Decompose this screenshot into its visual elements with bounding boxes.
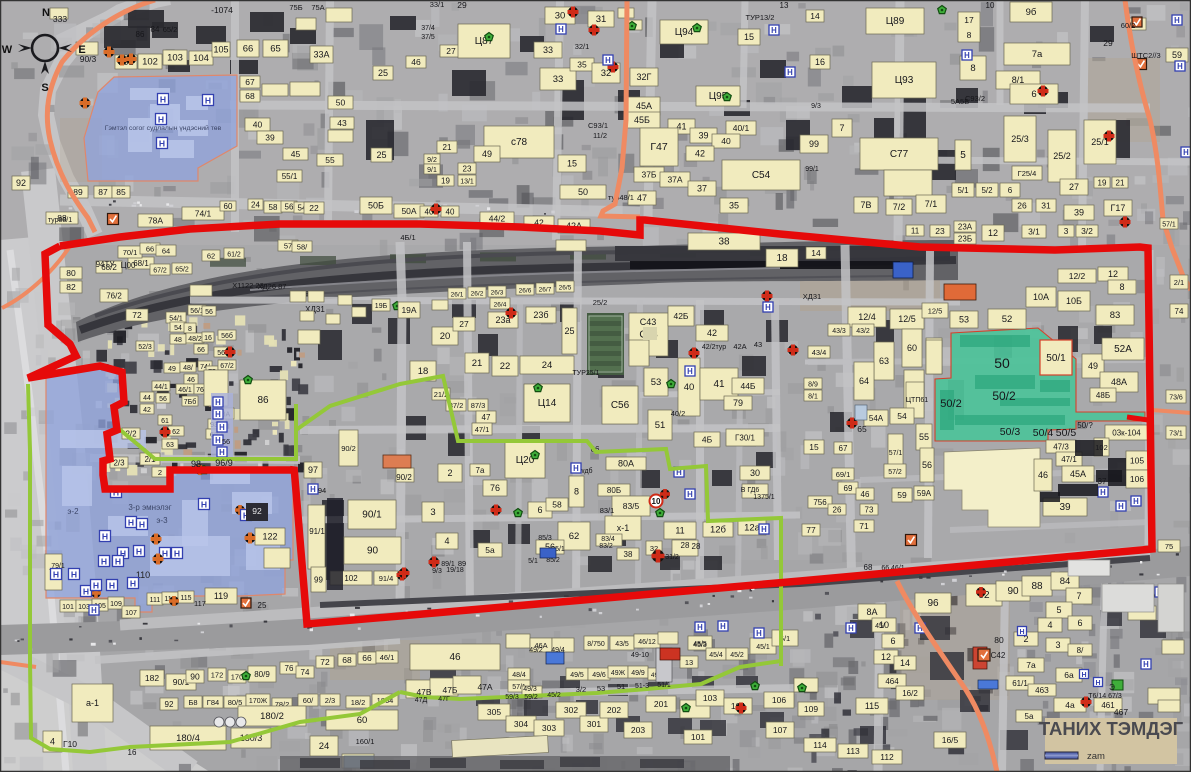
svg-text:333: 333 [53,14,67,24]
svg-text:H: H [687,490,693,499]
svg-text:5/1: 5/1 [957,186,969,195]
svg-text:87: 87 [98,187,108,197]
svg-text:H: H [1118,502,1124,511]
svg-text:67: 67 [245,77,255,87]
svg-text:12: 12 [988,228,998,238]
svg-text:64: 64 [162,247,170,256]
svg-text:4: 4 [444,536,449,546]
svg-text:13: 13 [780,1,789,10]
svg-text:25: 25 [376,150,386,160]
svg-text:464: 464 [885,677,899,686]
svg-text:37/5: 37/5 [421,34,435,41]
svg-text:56: 56 [222,437,230,446]
svg-text:H: H [310,485,316,494]
svg-text:12/4: 12/4 [858,312,876,322]
svg-text:55/1: 55/1 [282,172,298,181]
svg-text:10A: 10A [1033,292,1049,302]
svg-text:45Б: 45Б [634,115,650,125]
svg-text:H: H [174,549,180,559]
svg-text:12/2: 12/2 [1069,271,1086,281]
svg-text:4Б/1: 4Б/1 [400,233,415,242]
svg-text:H: H [215,398,221,407]
svg-text:58: 58 [552,500,562,510]
svg-text:46: 46 [187,377,195,384]
svg-text:ХД31: ХД31 [803,292,821,301]
svg-text:104: 104 [193,53,209,64]
svg-text:54: 54 [174,325,182,332]
svg-text:52/3: 52/3 [138,344,152,351]
svg-text:45/: 45/ [875,623,885,630]
svg-text:x-1: x-1 [617,523,630,533]
svg-text:24: 24 [251,201,260,210]
svg-text:H: H [964,51,970,60]
svg-text:32/1: 32/1 [575,42,590,51]
svg-text:Г17: Г17 [1111,203,1126,213]
svg-text:H: H [219,423,225,432]
svg-text:16/5: 16/5 [942,735,959,745]
svg-text:105: 105 [1130,456,1144,466]
svg-text:5a: 5a [1025,712,1034,721]
svg-text:62: 62 [207,252,215,261]
svg-text:С42: С42 [991,651,1006,660]
svg-text:51/1: 51/1 [657,682,671,689]
svg-text:65/2: 65/2 [163,25,178,34]
svg-text:60/2: 60/2 [1121,21,1136,30]
svg-text:85/3: 85/3 [538,535,552,542]
svg-text:40: 40 [253,120,263,130]
svg-text:3/2: 3/2 [1081,226,1093,236]
svg-text:H: H [1143,660,1149,669]
svg-text:2: 2 [447,468,452,478]
svg-text:53: 53 [959,315,969,325]
svg-text:92: 92 [16,178,26,188]
svg-text:42/2тур: 42/2тур [702,344,726,351]
svg-text:99/1: 99/1 [805,166,819,173]
svg-text:H: H [215,436,221,445]
svg-text:60: 60 [907,343,917,353]
svg-text:63: 63 [879,356,889,366]
svg-text:31/2: 31/2 [665,554,679,561]
svg-text:H: H [128,518,134,528]
svg-text:96/9: 96/9 [215,458,233,468]
svg-text:69/1: 69/1 [836,470,851,479]
svg-text:20: 20 [440,331,451,342]
svg-text:114: 114 [813,740,827,750]
svg-text:5: 5 [960,150,966,161]
svg-text:27: 27 [1069,182,1079,192]
svg-text:46З: 46З [1035,686,1049,695]
svg-text:4a: 4a [1065,700,1075,710]
svg-text:94: 94 [318,486,326,495]
svg-text:10Б: 10Б [1066,296,1082,306]
svg-text:45/2: 45/2 [730,652,744,659]
svg-text:67/2: 67/2 [153,268,167,275]
svg-text:22: 22 [309,203,319,213]
svg-text:H: H [573,464,579,473]
svg-text:12/5: 12/5 [928,307,943,316]
svg-text:29: 29 [1103,38,1113,48]
svg-text:ТУР13/2: ТУР13/2 [746,13,775,22]
svg-text:115: 115 [180,595,191,602]
svg-text:H: H [787,68,793,77]
svg-text:103: 103 [703,693,717,703]
svg-text:3/2: 3/2 [576,685,586,694]
svg-text:Г30/1: Г30/1 [735,434,755,443]
svg-text:8/9: 8/9 [808,382,818,389]
svg-text:47A: 47A [477,682,492,692]
svg-text:H: H [115,557,121,567]
svg-text:8/750: 8/750 [587,641,605,648]
svg-text:50/4: 50/4 [1033,427,1054,439]
svg-text:105: 105 [213,45,228,55]
svg-text:80Б: 80Б [607,486,621,495]
svg-text:91/4: 91/4 [379,574,394,583]
svg-text:43/2: 43/2 [856,328,870,335]
svg-text:52A: 52A [1114,344,1132,355]
svg-text:Ц14: Ц14 [538,398,557,409]
svg-text:5: 5 [1056,605,1061,615]
svg-text:25: 25 [564,326,574,336]
svg-text:24: 24 [319,741,330,752]
svg-text:68: 68 [245,91,255,101]
svg-text:12a: 12a [744,523,761,534]
svg-text:45/2: 45/2 [547,692,561,699]
svg-text:83/5: 83/5 [623,501,640,511]
svg-text:H: H [558,25,564,34]
svg-text:7a: 7a [1026,660,1036,670]
svg-text:H: H [160,95,166,105]
svg-text:56: 56 [285,203,294,212]
svg-text:8: 8 [1119,282,1124,292]
svg-text:13: 13 [685,658,693,667]
svg-text:50: 50 [994,355,1010,371]
svg-text:37Б: 37Б [641,170,656,180]
svg-text:29: 29 [457,0,467,10]
svg-text:11: 11 [675,526,684,536]
svg-text:H: H [1183,148,1189,157]
svg-text:13/1: 13/1 [460,179,474,186]
svg-text:H: H [158,115,164,125]
svg-text:8: 8 [970,63,975,74]
svg-text:51: 51 [655,420,666,431]
svg-text:5А5Б: 5А5Б [951,97,969,106]
svg-text:21: 21 [1116,179,1125,188]
svg-text:303: 303 [542,723,556,733]
svg-text:3/1: 3/1 [1028,227,1040,237]
svg-text:H: H [765,303,771,312]
svg-text:Ц94: Ц94 [675,27,694,38]
svg-text:50/?: 50/? [1077,421,1093,430]
svg-text:49: 49 [168,366,176,373]
svg-text:47В: 47В [416,687,431,697]
svg-text:467: 467 [1114,707,1128,717]
svg-text:H: H [201,500,207,510]
svg-text:26/2: 26/2 [471,291,484,298]
svg-text:83/1: 83/1 [600,506,615,515]
svg-text:40: 40 [446,208,455,217]
svg-text:60: 60 [224,202,233,211]
svg-text:57/2: 57/2 [888,469,902,476]
svg-text:51: 51 [617,682,625,691]
svg-text:101: 101 [691,732,705,742]
svg-text:53: 53 [651,377,662,388]
svg-text:50/5: 50/5 [1056,427,1077,439]
svg-text:W: W [2,44,13,56]
svg-text:3: 3 [1064,226,1069,236]
svg-text:117: 117 [194,599,206,608]
svg-text:90/2: 90/2 [396,473,412,482]
svg-text:57/1: 57/1 [1162,222,1176,229]
svg-text:47Г: 47Г [438,696,450,703]
svg-text:39: 39 [1074,208,1084,218]
svg-text:94ТУ: 94ТУ [96,260,116,269]
svg-text:H: H [605,56,611,65]
svg-text:С77: С77 [890,149,909,160]
svg-text:Гэмтэл согог судлалын үндэсний: Гэмтэл согог судлалын үндэсний төв [105,124,222,132]
svg-text:59: 59 [1172,50,1182,60]
svg-text:85: 85 [116,187,126,197]
svg-text:8: 8 [967,30,972,40]
svg-text:18: 18 [776,253,788,264]
svg-text:7/1: 7/1 [925,199,938,209]
svg-text:H: H [1174,16,1180,25]
svg-text:12: 12 [1108,269,1118,279]
svg-text:15: 15 [744,32,754,42]
svg-text:80: 80 [66,268,76,278]
svg-text:38: 38 [718,237,730,248]
svg-text:75A: 75A [311,3,324,12]
svg-text:82: 82 [66,282,76,292]
svg-text:42Б: 42Б [673,311,688,321]
svg-text:71: 71 [859,521,869,531]
svg-text:14: 14 [811,248,821,258]
svg-text:9б: 9б [1026,7,1037,18]
svg-text:6a: 6a [1064,670,1074,680]
svg-text:102: 102 [142,57,158,68]
svg-text:92: 92 [165,700,174,709]
svg-text:60: 60 [357,715,368,726]
svg-text:7Бб: 7Бб [184,398,197,406]
svg-text:26: 26 [1017,201,1027,211]
svg-text:49/2: 49/2 [529,647,543,654]
svg-text:27: 27 [446,46,456,56]
svg-text:6: 6 [1077,618,1082,628]
svg-text:10: 10 [986,1,995,10]
svg-text:201: 201 [654,699,668,709]
svg-text:54A: 54A [869,414,884,423]
svg-text:50/2: 50/2 [940,398,961,410]
svg-text:76: 76 [196,387,204,394]
svg-text:44/1: 44/1 [154,384,168,391]
svg-text:160/1: 160/1 [356,737,375,746]
svg-text:48/: 48/ [183,365,193,372]
svg-text:H: H [756,629,762,638]
svg-text:H: H [1081,672,1086,679]
svg-text:90: 90 [1007,586,1019,597]
svg-text:46/12: 46/12 [638,639,656,646]
svg-text:H: H [1177,62,1183,71]
svg-text:19A: 19A [401,305,416,315]
svg-text:113: 113 [846,746,860,756]
svg-text:65: 65 [270,44,281,55]
svg-text:73/1: 73/1 [1169,431,1183,438]
svg-text:68/1: 68/1 [133,259,149,268]
svg-text:12б: 12б [710,525,727,536]
svg-text:107: 107 [773,725,787,735]
svg-text:8A: 8A [866,607,877,617]
svg-text:84: 84 [151,25,160,34]
svg-text:44Б: 44Б [740,381,755,391]
svg-text:59/3: 59/3 [505,694,519,701]
svg-text:С56: С56 [611,400,630,411]
svg-text:92: 92 [252,506,262,516]
svg-text:15: 15 [567,159,577,169]
svg-text:80/9: 80/9 [254,670,270,679]
svg-text:H: H [109,581,115,591]
svg-text:26/4: 26/4 [494,302,507,309]
svg-text:37: 37 [697,184,707,194]
svg-text:11/2: 11/2 [593,131,607,140]
svg-text:50Б: 50Б [368,201,384,211]
svg-text:26/6: 26/6 [519,288,532,295]
svg-text:52: 52 [1002,314,1013,325]
svg-text:03к-104: 03к-104 [1112,429,1141,438]
svg-text:75: 75 [1165,542,1173,551]
svg-text:H: H [71,570,77,580]
svg-text:тур48/1: тур48/1 [608,193,634,202]
svg-text:16: 16 [128,748,137,757]
svg-text:3-р эмнэлэг: 3-р эмнэлэг [128,503,171,512]
svg-text:23: 23 [935,226,945,236]
svg-text:90: 90 [367,546,379,557]
svg-text:182: 182 [145,673,159,683]
svg-text:61/2: 61/2 [227,252,241,259]
svg-text:109: 109 [110,601,122,608]
svg-text:55: 55 [325,155,335,165]
svg-text:Ц89: Ц89 [886,16,905,27]
svg-text:88: 88 [1031,581,1043,592]
svg-text:H: H [697,623,703,632]
svg-text:59/2: 59/2 [524,694,538,701]
svg-text:90/3: 90/3 [80,54,97,64]
svg-text:96: 96 [927,598,939,609]
svg-text:78A: 78A [148,216,163,226]
svg-text:37A: 37A [667,175,682,185]
svg-text:H: H [687,367,693,376]
svg-text:46: 46 [449,652,461,663]
svg-text:27: 27 [459,319,469,329]
svg-text:7/2: 7/2 [893,202,906,212]
svg-text:С54: С54 [752,170,771,181]
svg-text:H: H [761,525,767,534]
svg-text:11: 11 [911,227,920,236]
svg-text:H: H [1100,488,1106,497]
svg-text:57: 57 [284,242,292,251]
svg-text:26/5: 26/5 [559,285,572,292]
svg-text:302: 302 [564,705,578,715]
svg-text:H: H [159,139,165,149]
svg-text:31: 31 [596,14,607,25]
svg-text:98: 98 [191,459,201,469]
svg-text:304: 304 [514,719,528,729]
svg-text:48/2: 48/2 [188,336,202,343]
svg-text:47Б: 47Б [442,685,457,695]
svg-text:72: 72 [132,310,142,320]
svg-text:103: 103 [167,53,183,64]
svg-text:Г84: Г84 [207,698,219,707]
svg-text:H: H [720,622,726,631]
svg-text:э-3: э-3 [156,516,168,525]
svg-text:40/1: 40/1 [733,123,750,133]
svg-text:Г10: Г10 [63,739,77,749]
svg-text:с78: с78 [511,137,528,148]
svg-text:203: 203 [631,725,645,735]
svg-text:90/1: 90/1 [362,510,382,521]
svg-text:16/2: 16/2 [902,689,918,698]
svg-text:45A: 45A [1070,469,1086,479]
svg-text:9/3: 9/3 [432,568,442,575]
svg-text:7: 7 [839,123,844,133]
svg-text:64: 64 [859,376,869,386]
svg-text:23: 23 [463,165,472,174]
svg-text:5/1: 5/1 [528,558,538,565]
svg-text:101: 101 [62,604,74,611]
svg-text:756: 756 [813,498,827,507]
svg-text:zam: zam [1087,751,1105,762]
svg-text:45A: 45A [636,101,652,111]
svg-text:26/7: 26/7 [539,287,552,294]
svg-text:102: 102 [344,574,358,583]
svg-text:32Г: 32Г [637,72,652,82]
svg-text:19Б: 19Б [375,303,388,310]
svg-text:44: 44 [143,395,151,402]
svg-text:6: 6 [890,636,895,646]
svg-text:ТУР25/1: ТУР25/1 [572,370,599,377]
svg-text:6: 6 [1008,186,1013,195]
svg-text:48Б: 48Б [1096,391,1110,400]
svg-text:С93/1: С93/1 [588,121,608,130]
svg-text:112: 112 [880,752,894,762]
svg-text:16: 16 [815,57,825,67]
svg-text:61/1: 61/1 [1012,679,1028,688]
svg-text:23A: 23A [958,223,973,232]
svg-text:301: 301 [587,719,601,729]
svg-text:ХД26 87: ХД26 87 [258,282,287,291]
svg-text:62: 62 [172,429,180,436]
svg-text:H: H [53,570,59,580]
svg-text:H: H [1133,497,1139,506]
svg-text:43: 43 [337,118,347,128]
svg-text:H: H [93,581,99,591]
svg-text:46: 46 [411,57,421,67]
svg-text:25/2: 25/2 [1053,151,1071,161]
svg-text:75Б: 75Б [289,3,302,12]
svg-text:H: H [130,579,136,589]
svg-text:17: 17 [964,15,974,25]
svg-text:73/6: 73/6 [1169,395,1183,402]
svg-text:76: 76 [285,664,294,673]
svg-text:106: 106 [772,695,786,705]
svg-text:54: 54 [897,411,907,421]
svg-text:48/4: 48/4 [512,672,526,679]
svg-text:7: 7 [1076,591,1081,601]
svg-text:49: 49 [1088,361,1098,371]
svg-text:305: 305 [487,707,501,717]
svg-text:H: H [848,624,854,633]
svg-text:202: 202 [607,705,621,715]
svg-text:8: 8 [574,487,579,497]
svg-text:Г47: Г47 [650,141,668,153]
